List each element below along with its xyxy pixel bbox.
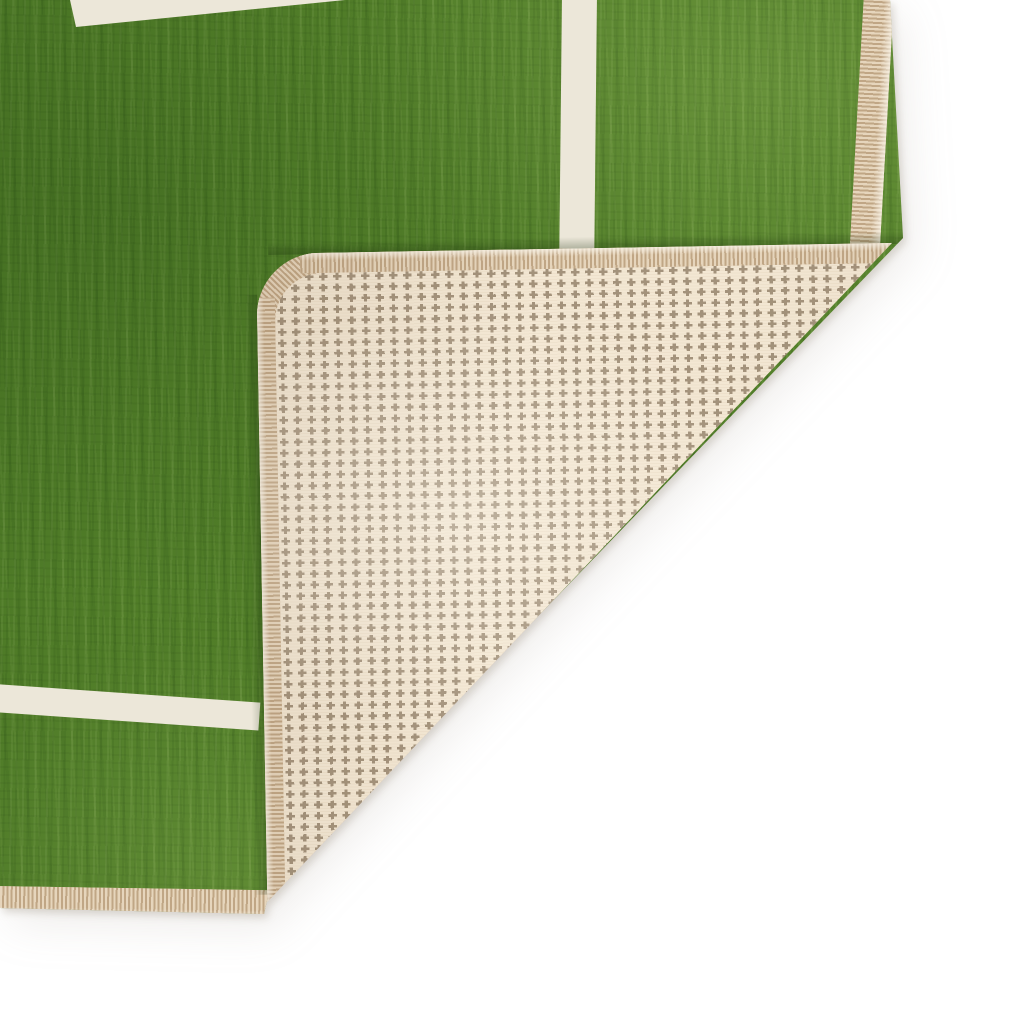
- field-line-top: [0, 0, 360, 32]
- folded-corner-flap: [256, 242, 968, 954]
- product-photo: [0, 0, 1024, 1024]
- rug: [0, 0, 1024, 1024]
- flap-backing-houndstooth: [274, 262, 968, 954]
